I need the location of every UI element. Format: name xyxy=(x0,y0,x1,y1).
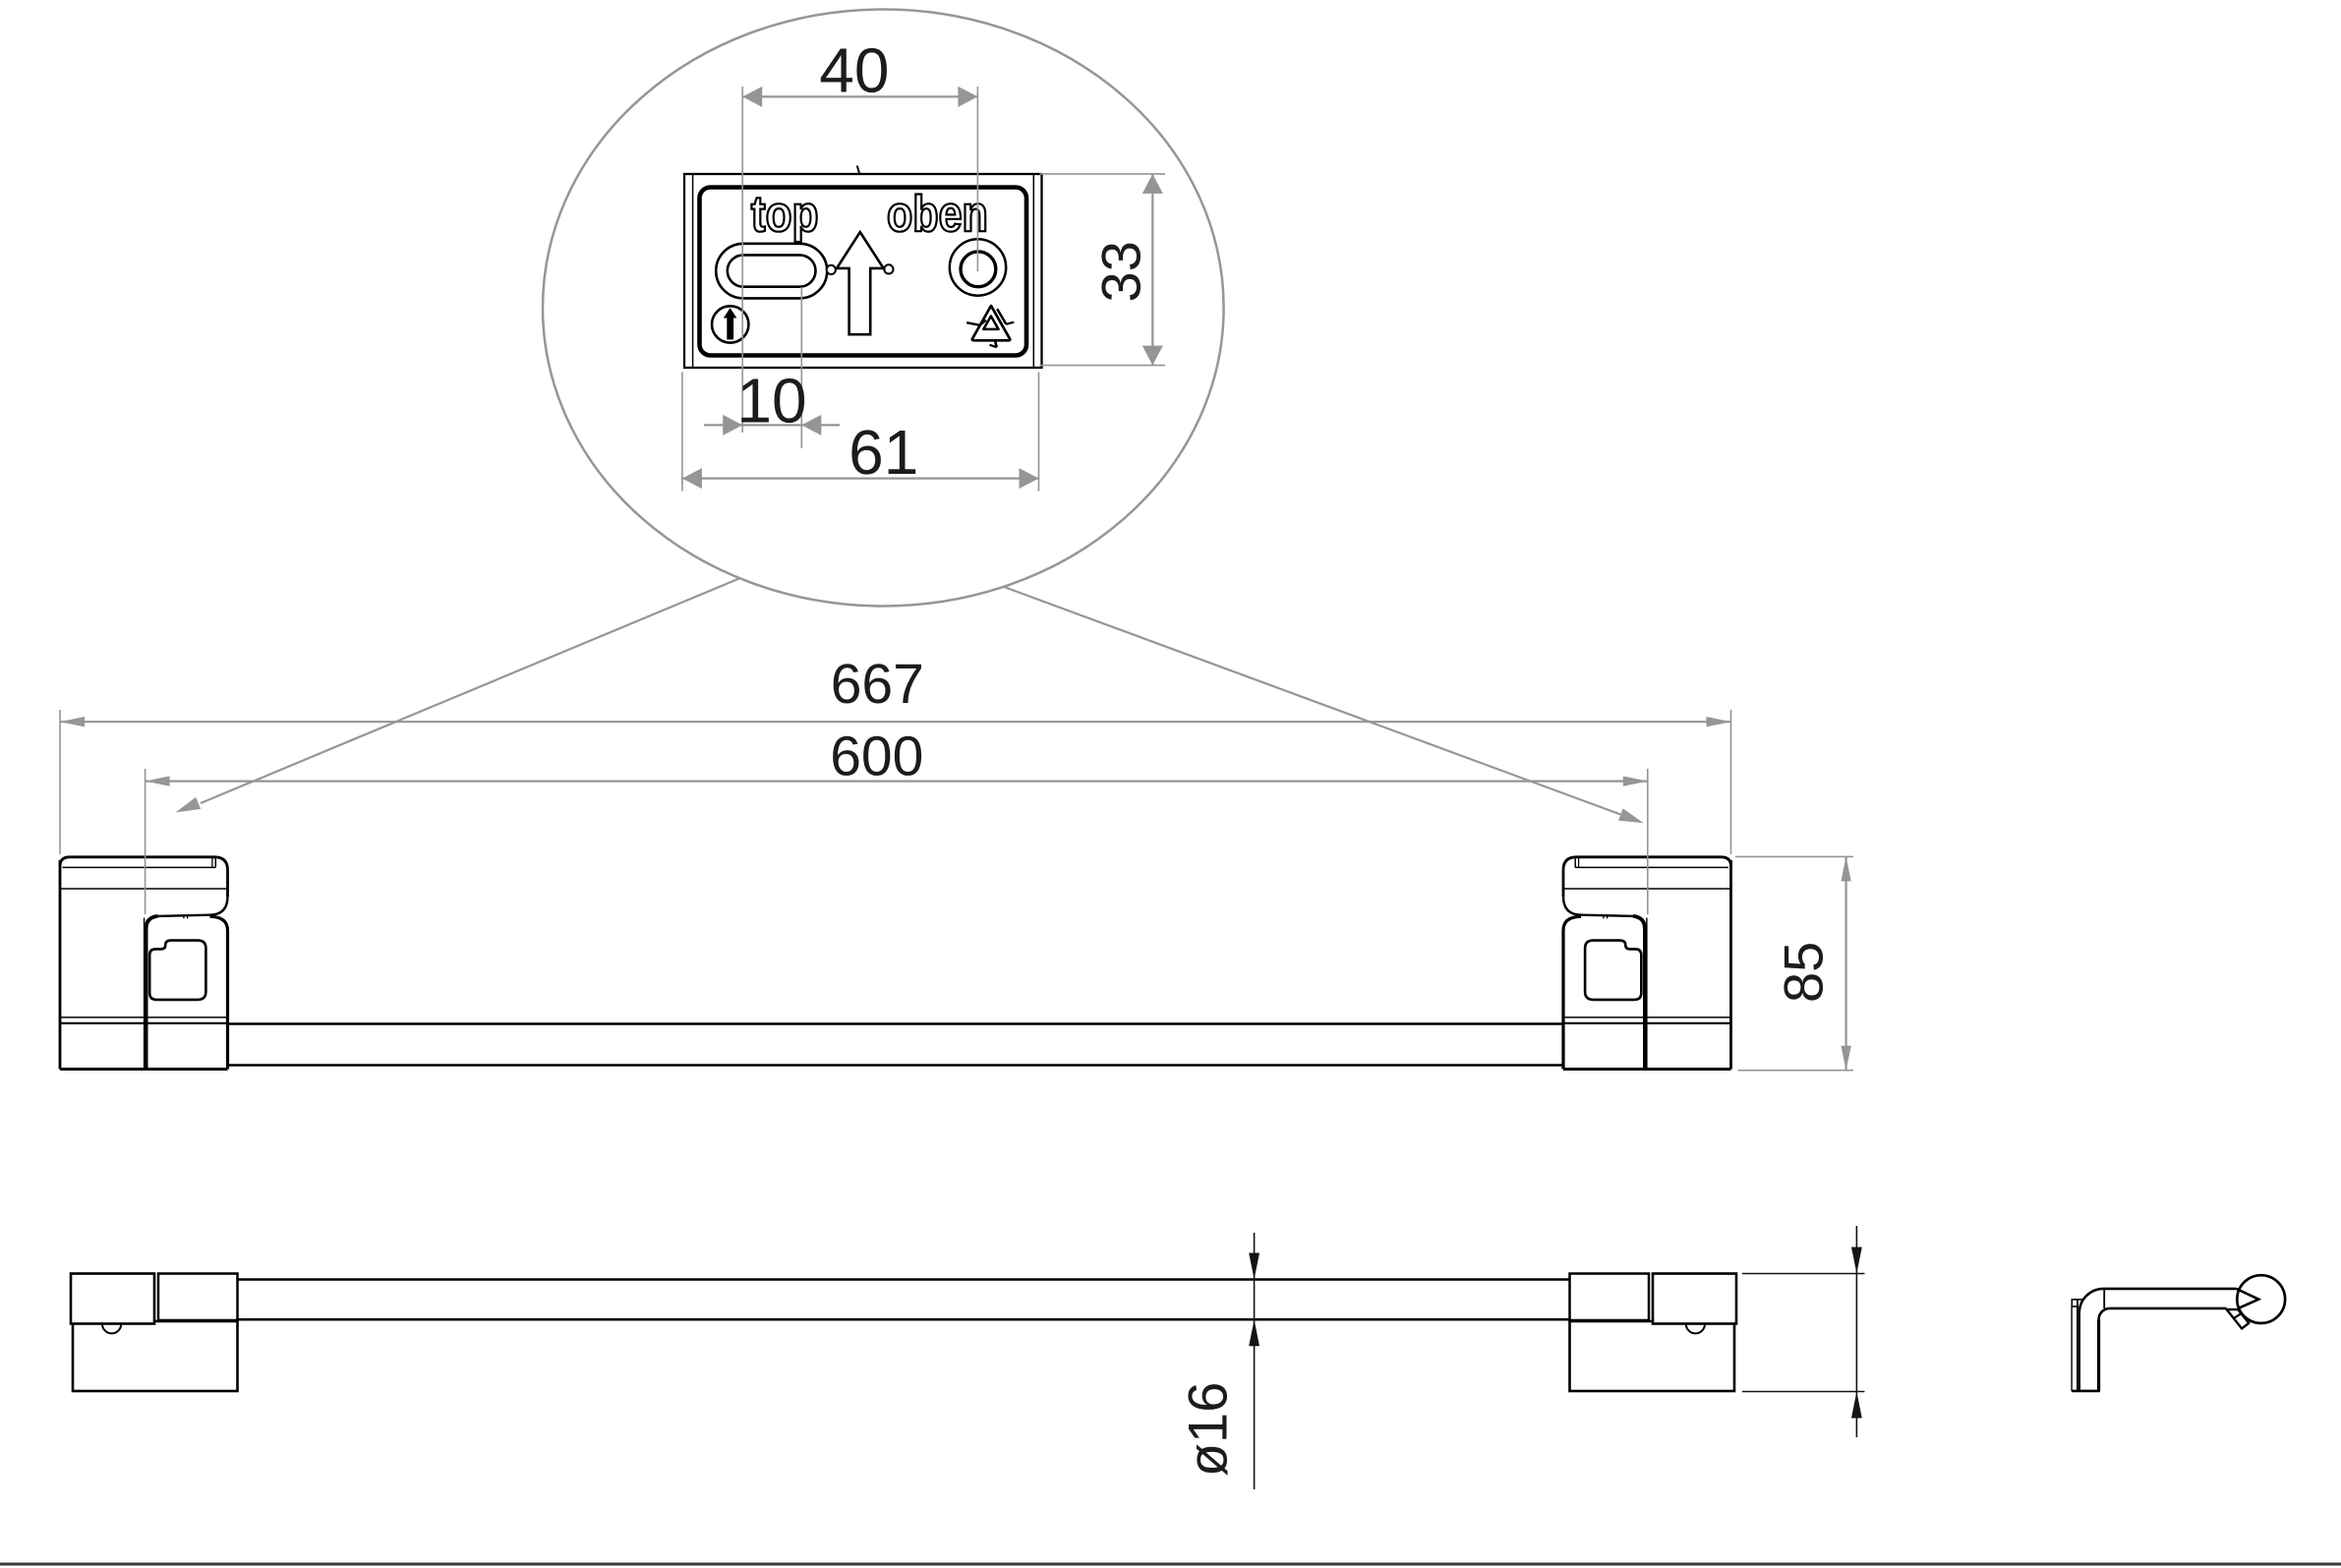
svg-text:85: 85 xyxy=(1772,942,1834,1003)
svg-text:40: 40 xyxy=(819,35,889,106)
svg-text:10: 10 xyxy=(736,366,806,436)
svg-text:ø16: ø16 xyxy=(1177,1382,1239,1478)
svg-text:667: 667 xyxy=(831,653,924,716)
svg-text:61: 61 xyxy=(849,417,918,488)
svg-text:33: 33 xyxy=(1090,241,1152,302)
svg-text:600: 600 xyxy=(830,726,923,788)
